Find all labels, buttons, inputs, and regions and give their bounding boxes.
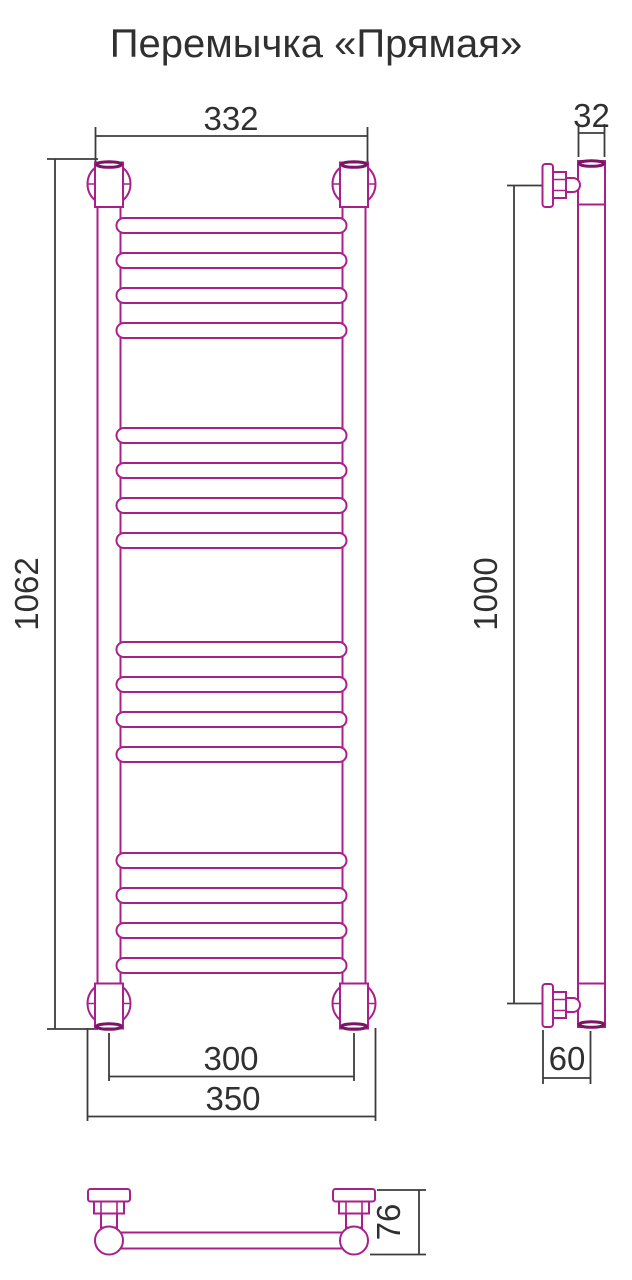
rung bbox=[117, 923, 347, 938]
side-wall-offset-label: 60 bbox=[549, 1040, 586, 1077]
rung bbox=[117, 463, 347, 478]
bracket-body-bottom-right bbox=[340, 984, 368, 1029]
side-depth-label: 32 bbox=[573, 97, 610, 134]
tube-section-left bbox=[95, 1227, 123, 1255]
rung bbox=[117, 498, 347, 513]
rung bbox=[117, 533, 347, 548]
side-wall-offset-dimension: 60 bbox=[543, 1030, 591, 1084]
front-outer-width-label: 350 bbox=[205, 1080, 260, 1117]
rung bbox=[117, 642, 347, 657]
bracket-flange bbox=[543, 164, 554, 207]
rung bbox=[117, 712, 347, 727]
bracket-nut bbox=[553, 992, 566, 1018]
rail-left bbox=[98, 207, 121, 984]
front-view: 332 1062 bbox=[8, 100, 376, 1121]
side-depth-dimension: 32 bbox=[573, 97, 610, 157]
bracket-body-bottom-left bbox=[95, 984, 123, 1029]
plan-depth-label: 76 bbox=[370, 1204, 407, 1241]
bracket-nut bbox=[339, 1202, 369, 1214]
front-inner-width-label: 300 bbox=[203, 1040, 258, 1077]
bracket-nut bbox=[553, 172, 566, 198]
side-bracket-bottom bbox=[543, 984, 581, 1027]
bracket-body-top-right bbox=[340, 163, 368, 208]
crossbar-plan-view: 76 bbox=[88, 1189, 426, 1255]
bracket-connector bbox=[566, 178, 580, 192]
bracket-flange bbox=[543, 984, 554, 1027]
drawing-page: Перемычка «Прямая» 332 1062 bbox=[0, 0, 632, 1280]
front-inner-width-dimension: 300 bbox=[109, 1033, 354, 1081]
side-tube bbox=[578, 161, 605, 1027]
page-title: Перемычка «Прямая» bbox=[110, 22, 522, 66]
front-overall-height-dimension: 1062 bbox=[8, 159, 98, 1029]
rail-right bbox=[343, 207, 366, 984]
rung bbox=[117, 958, 347, 973]
rung bbox=[117, 428, 347, 443]
front-overall-height-label: 1062 bbox=[8, 557, 45, 630]
front-top-width-label: 332 bbox=[203, 100, 258, 137]
bracket-connector bbox=[566, 998, 580, 1012]
rung bbox=[117, 888, 347, 903]
plan-depth-dimension: 76 bbox=[370, 1190, 426, 1255]
bracket-nut bbox=[94, 1202, 124, 1214]
side-mount-height-dimension: 1000 bbox=[467, 186, 545, 1004]
side-view: 32 1000 60 bbox=[467, 97, 610, 1084]
bracket-connector bbox=[346, 1214, 362, 1228]
side-bracket-top bbox=[543, 164, 581, 207]
plan-bracket-right bbox=[333, 1189, 375, 1228]
rung bbox=[117, 253, 347, 268]
side-mount-height-label: 1000 bbox=[467, 557, 504, 630]
rung bbox=[117, 218, 347, 233]
rung-group bbox=[117, 218, 347, 973]
rung bbox=[117, 853, 347, 868]
technical-drawing: Перемычка «Прямая» 332 1062 bbox=[0, 0, 632, 1280]
front-top-width-dimension: 332 bbox=[96, 100, 368, 164]
bracket-connector bbox=[101, 1214, 117, 1228]
tube-section-right bbox=[340, 1227, 368, 1255]
bracket-body-top-left bbox=[95, 163, 123, 208]
rung bbox=[117, 323, 347, 338]
rung bbox=[117, 677, 347, 692]
flange-tick-marks bbox=[88, 184, 375, 1004]
bracket-flange bbox=[88, 1189, 130, 1202]
dimension-lines bbox=[507, 186, 545, 1004]
dimension-lines bbox=[47, 159, 98, 1029]
bracket-flange bbox=[333, 1189, 375, 1202]
crossbar bbox=[109, 1233, 354, 1249]
plan-bracket-left bbox=[88, 1189, 130, 1228]
rung bbox=[117, 288, 347, 303]
rung bbox=[117, 747, 347, 762]
